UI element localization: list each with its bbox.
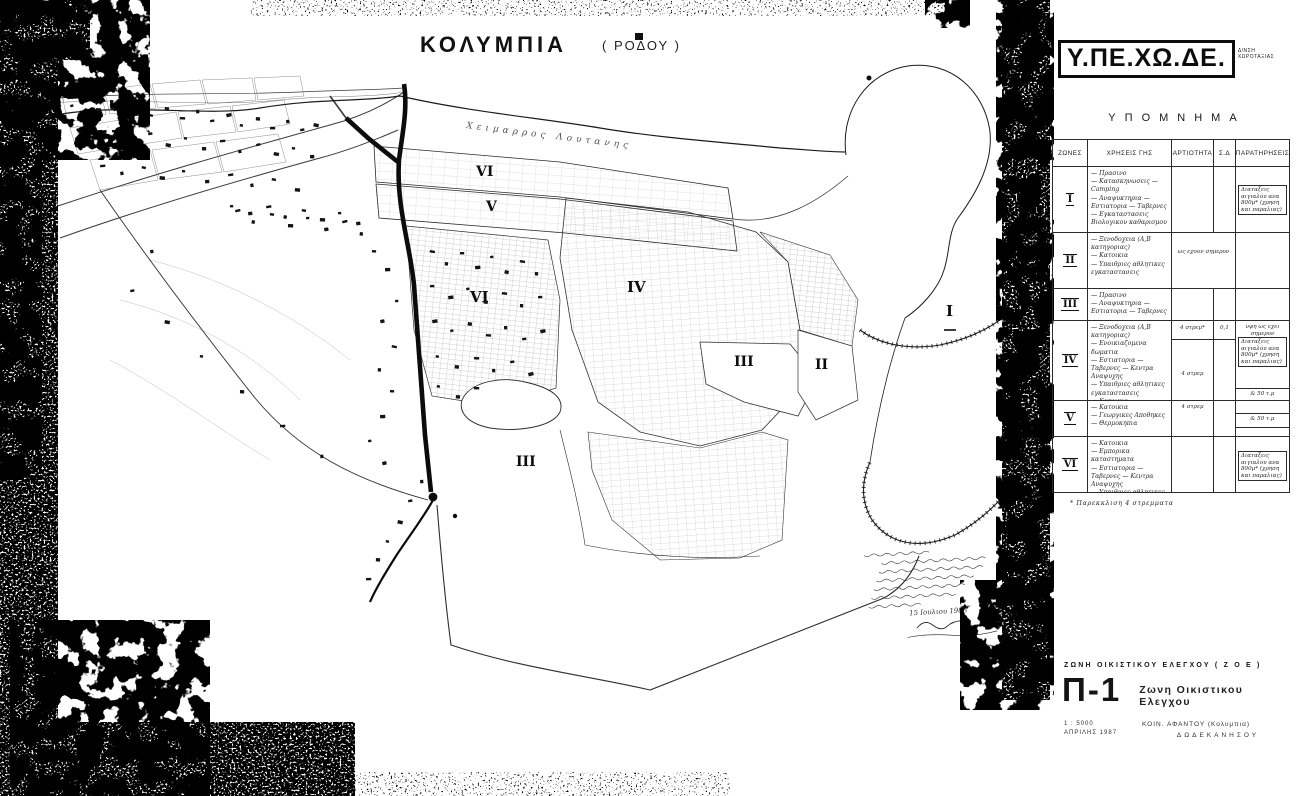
artiotita-value: 4 στρεμ — [1172, 404, 1213, 411]
legend-row-4: IV Ξενοδοχεια (Α,Β κατηγοριας) Ενοικιαζο… — [1053, 320, 1289, 400]
artiotita-value: 4 στρεμ — [1172, 371, 1213, 378]
scanned-map-page: ΚΟΛΥΜΠΙΑ ( ΡΟΔΟΥ ) Χειμαρρος Λουτανης VI… — [0, 0, 1296, 796]
remark-box: Διαταξεις αιγιαλου ανα 800μ* (χρηση και … — [1238, 337, 1287, 367]
zone-label-ii: II — [815, 357, 828, 373]
legend-row-5: V Κατοικια Γεωργικες Αποθηκες Θερμοκηπια… — [1053, 400, 1289, 436]
sheet-number: Π-1 — [1062, 675, 1121, 705]
map-title: ΚΟΛΥΜΠΙΑ — [420, 32, 567, 57]
map-scale: 1 : 5000 — [1064, 720, 1142, 729]
zone-cell: III — [1061, 298, 1079, 311]
zone-label-v-band: V — [485, 199, 498, 215]
agency-header: Υ.ΠΕ.ΧΩ.ΔΕ. Δ/ΝΣΗ ΧΩΡΟΤΑΞΙΑΣ — [1058, 40, 1296, 78]
zone-cell: IV — [1062, 354, 1078, 367]
legend-row-2: II Ξενοδοχεια (Α,Β κατηγοριας) Κατοικια … — [1053, 232, 1289, 288]
col-remarks: ΠΑΡΑΤΗΡΗΣΕΙΣ — [1235, 140, 1289, 166]
use-item: Ξενοδοχεια (Α,Β κατηγοριας) — [1091, 236, 1169, 252]
agency-department: Δ/ΝΣΗ ΧΩΡΟΤΑΞΙΑΣ — [1238, 48, 1274, 60]
legend-heading: ΥΠΟΜΝΗΜΑ — [1058, 112, 1296, 124]
zone-label-vi-band: VI — [475, 164, 493, 180]
municipality: ΚΟΙΝ. ΑΦΑΝΤΟΥ (Κολυμπια) — [1142, 720, 1294, 730]
sd-value: 0,1 — [1214, 325, 1235, 332]
artiotita-note: ως εχουν σημερον — [1172, 249, 1235, 256]
zone-cell: VI — [1062, 458, 1078, 471]
use-item: Υπαιθριες αθλητικες εγκαταστασεις — [1091, 489, 1169, 492]
sheet-subtitle: Ζωνη Οικιστικου Ελεγχου — [1139, 684, 1294, 708]
use-item: Πρασινο — [1091, 170, 1169, 178]
zoe-line: ΖΩΝΗ ΟΙΚΙΣΤΙΚΟΥ ΕΛΕΓΧΟΥ ( Ζ Ο Ε ) — [1064, 662, 1294, 669]
handwritten-date: 15 Ιουλιου 1988 — [909, 606, 968, 617]
legend-row-3: III Πρασινο Αναψυκτηρια — Εστιατορια — Τ… — [1053, 288, 1289, 320]
remark-value: & 50 τ.μ — [1236, 391, 1289, 398]
use-item: Κατοικια — [1091, 252, 1169, 260]
use-item: Υπαιθριες αθλητικες εγκαταστασεις — [1091, 261, 1169, 277]
map-title-paren: ( ΡΟΔΟΥ ) — [602, 38, 681, 53]
zone-cell: I — [1066, 193, 1075, 206]
legend-header-row: ΖΩΝΕΣ ΧΡΗΣΕΙΣ ΓΗΣ ΑΡΤΙΟΤΗΤΑ Σ.Δ ΠΑΡΑΤΗΡΗ… — [1053, 140, 1289, 166]
map-date: ΑΠΡΙΛΗΣ 1987 — [1064, 729, 1142, 738]
use-item: Ξενοδοχεια (Α,Β κατηγοριας) — [1091, 324, 1169, 340]
title-block: ΖΩΝΗ ΟΙΚΙΣΤΙΚΟΥ ΕΛΕΓΧΟΥ ( Ζ Ο Ε ) Π-1 Ζω… — [1056, 662, 1294, 741]
use-item: Αναψυκτηρια — Εστιατορια — Ταβερνες — [1091, 195, 1169, 211]
use-item: Κατασκηνωσεις — Camping — [1091, 178, 1169, 194]
parcel-grids — [406, 198, 858, 560]
legend-row-1: I Πρασινο Κατασκηνωσεις — Camping Αναψυκ… — [1053, 166, 1289, 232]
use-item: Εστιατορια — Ταβερνες — Κεντρα Αναψυχης — [1091, 465, 1169, 490]
col-artiotita: ΑΡΤΙΟΤΗΤΑ — [1171, 140, 1213, 166]
remark-box: Διαταξεις αιγιαλου ανα 800μ* (χρηση και … — [1238, 451, 1287, 481]
legend-panel: Υ.ΠΕ.ΧΩ.ΔΕ. Δ/ΝΣΗ ΧΩΡΟΤΑΞΙΑΣ ΥΠΟΜΝΗΜΑ ΖΩ… — [1052, 40, 1296, 507]
use-item: Πρασινο — [1091, 292, 1169, 300]
zone-label-iv: IV — [627, 278, 646, 296]
use-item: Κατοικια — [1091, 440, 1169, 448]
zone-label-iii: III — [734, 354, 754, 370]
agency-dept-line2: ΧΩΡΟΤΑΞΙΑΣ — [1238, 54, 1274, 60]
legend-row-6: VI Κατοικια Εμπορικα καταστηματα Εστιατο… — [1053, 436, 1289, 492]
use-item: Αναψυκτηρια — Εστιατορια — Ταβερνες — [1091, 300, 1169, 316]
use-item: Εγκαταστασεις Βιολογικου καθαρισμου — [1091, 211, 1169, 227]
prefecture: ΔΩΔΕΚΑΝΗΣΟΥ — [1142, 731, 1294, 741]
zone-label-vi: VI — [469, 288, 489, 306]
use-item: Θερμοκηπια — [1091, 420, 1169, 428]
stream-label: Χειμαρρος Λουτανης — [465, 121, 633, 151]
use-item: Κατοικια — [1091, 398, 1169, 400]
agency-title: Υ.ΠΕ.ΧΩ.ΔΕ. — [1058, 40, 1235, 78]
use-item: Ενοικιαζομενα δωματια — [1091, 340, 1169, 356]
use-item: Εστιατορια — Ταβερνες — Κεντρα Αναψυχης — [1091, 357, 1169, 382]
use-item: Υπαιθριες αθλητικες εγκαταστασεις — [1091, 381, 1169, 397]
use-item: Εμπορικα καταστηματα — [1091, 448, 1169, 464]
use-item: Κατοικια — [1091, 404, 1169, 412]
col-uses: ΧΡΗΣΕΙΣ ΓΗΣ — [1087, 140, 1171, 166]
use-item: Γεωργικες Αποθηκες — [1091, 412, 1169, 420]
zone-label-iii-south: III — [516, 454, 536, 470]
legend-table: ΖΩΝΕΣ ΧΡΗΣΕΙΣ ΓΗΣ ΑΡΤΙΟΤΗΤΑ Σ.Δ ΠΑΡΑΤΗΡΗ… — [1052, 139, 1290, 493]
zone-label-i: I — [946, 302, 953, 320]
zone-cell: V — [1064, 412, 1076, 425]
zone-cell: II — [1063, 254, 1076, 267]
col-sd: Σ.Δ — [1213, 140, 1235, 166]
contour-lines — [110, 260, 350, 460]
remark-box: Διαταξεις αιγιαλου ανα 800μ* (χρηση και … — [1238, 185, 1287, 215]
artiotita-value: 4 στρεμ* — [1172, 325, 1213, 332]
remark-value: & 50 τ.μ — [1236, 416, 1289, 423]
legend-footnote: * Παρεκκλιση 4 στρεμματα — [1070, 499, 1296, 507]
col-zones: ΖΩΝΕΣ — [1053, 140, 1087, 166]
remark-note: υψη ως εχει σημερον — [1236, 324, 1289, 337]
